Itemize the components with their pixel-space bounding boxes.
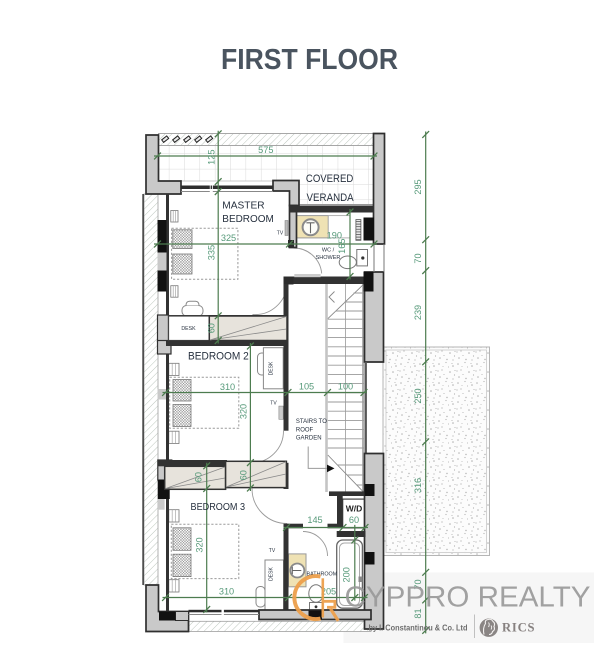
svg-text:60: 60	[194, 472, 204, 482]
svg-text:60: 60	[239, 470, 249, 480]
svg-text:239: 239	[413, 305, 423, 320]
svg-text:VERANDA: VERANDA	[307, 192, 355, 204]
svg-text:BEDROOM 2: BEDROOM 2	[188, 351, 249, 363]
svg-text:BEDROOM: BEDROOM	[222, 214, 273, 225]
svg-text:CYPPRO REALTY: CYPPRO REALTY	[345, 582, 591, 614]
svg-text:STAIRS TO: STAIRS TO	[296, 419, 327, 425]
svg-text:DESK: DESK	[269, 361, 275, 375]
svg-text:200: 200	[342, 567, 352, 582]
svg-text:310: 310	[220, 382, 235, 392]
svg-text:165: 165	[337, 239, 347, 254]
svg-text:FIRST FLOOR: FIRST FLOOR	[221, 44, 398, 76]
svg-text:ROOF: ROOF	[296, 428, 314, 434]
svg-text:320: 320	[239, 404, 249, 419]
svg-text:100: 100	[338, 382, 353, 392]
svg-text:COVERED: COVERED	[306, 173, 354, 185]
svg-text:70: 70	[413, 253, 423, 263]
svg-text:DESK: DESK	[269, 567, 275, 581]
svg-text:SHOWER: SHOWER	[316, 255, 341, 261]
svg-text:TV: TV	[269, 548, 276, 554]
svg-text:320: 320	[195, 537, 205, 552]
svg-text:by I. Constantinou & Co. Ltd: by I. Constantinou & Co. Ltd	[369, 624, 468, 633]
svg-text:145: 145	[307, 515, 322, 525]
svg-text:60: 60	[206, 323, 216, 333]
svg-text:310: 310	[219, 587, 234, 597]
svg-text:BEDROOM 3: BEDROOM 3	[191, 502, 246, 513]
svg-text:TV: TV	[270, 401, 277, 407]
svg-text:325: 325	[221, 233, 236, 243]
svg-text:TV: TV	[277, 231, 284, 237]
svg-text:MASTER: MASTER	[222, 201, 265, 212]
svg-text:335: 335	[206, 245, 216, 260]
svg-text:RICS: RICS	[502, 621, 535, 635]
svg-text:60: 60	[349, 515, 359, 525]
svg-text:DESK: DESK	[181, 326, 196, 332]
svg-text:WC /: WC /	[322, 248, 335, 254]
svg-text:295: 295	[413, 179, 423, 194]
svg-text:GARDEN: GARDEN	[296, 436, 322, 442]
svg-text:105: 105	[299, 382, 314, 392]
svg-text:250: 250	[413, 388, 423, 403]
svg-text:575: 575	[258, 145, 273, 155]
svg-text:W/D: W/D	[346, 504, 363, 514]
svg-text:125: 125	[206, 150, 216, 165]
svg-text:316: 316	[413, 478, 423, 493]
